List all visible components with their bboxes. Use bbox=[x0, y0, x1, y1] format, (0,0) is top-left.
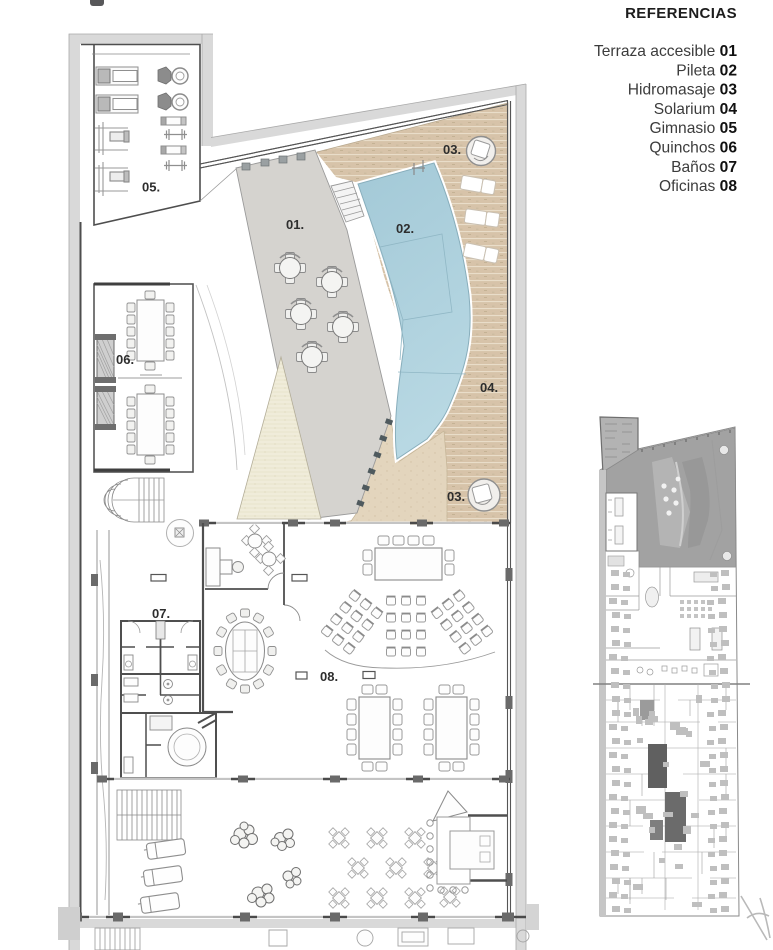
svg-text:01.: 01. bbox=[286, 217, 304, 232]
svg-text:03.: 03. bbox=[443, 142, 461, 157]
svg-text:Terraza accesible 01: Terraza accesible 01 bbox=[594, 43, 737, 60]
svg-text:Gimnasio 05: Gimnasio 05 bbox=[649, 120, 737, 137]
svg-text:03.: 03. bbox=[447, 489, 465, 504]
svg-text:Hidromasaje 03: Hidromasaje 03 bbox=[628, 82, 738, 99]
svg-text:Pileta 02: Pileta 02 bbox=[676, 62, 737, 79]
svg-text:06.: 06. bbox=[116, 352, 134, 367]
svg-text:07.: 07. bbox=[152, 606, 170, 621]
svg-text:02.: 02. bbox=[396, 221, 414, 236]
svg-text:Oficinas 08: Oficinas 08 bbox=[659, 178, 737, 195]
svg-text:Baños 07: Baños 07 bbox=[671, 159, 737, 176]
svg-text:Quinchos 06: Quinchos 06 bbox=[649, 140, 737, 157]
svg-text:REFERENCIAS: REFERENCIAS bbox=[625, 5, 737, 22]
svg-text:08.: 08. bbox=[320, 669, 338, 684]
svg-text:04.: 04. bbox=[480, 380, 498, 395]
svg-text:Solarium 04: Solarium 04 bbox=[654, 101, 738, 118]
svg-text:05.: 05. bbox=[142, 180, 160, 195]
